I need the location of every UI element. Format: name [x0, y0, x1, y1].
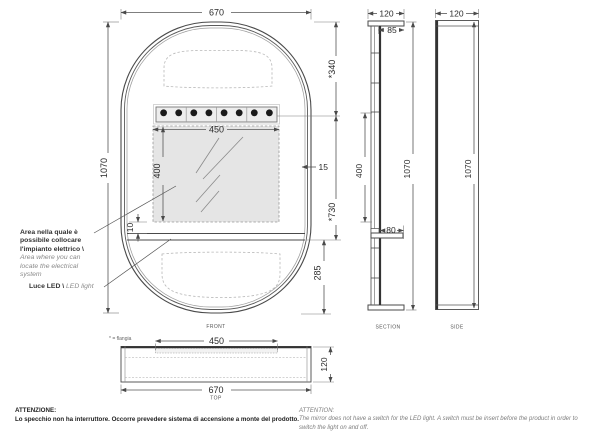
note-italian-title: ATTENZIONE: — [15, 407, 299, 416]
dim-shelf-to-bottom: 285 — [313, 265, 323, 280]
side-view: 120 1070 SIDE — [436, 9, 479, 331]
section-view-label: SECTION — [375, 325, 400, 331]
section-top-cap — [368, 21, 404, 26]
dim-section-depth: 120 — [379, 9, 393, 19]
dim-section-inner-depth: 85 — [387, 25, 397, 35]
electrical-area-annotation-it: Area nella quale è possibile collocare l… — [20, 229, 84, 253]
led-strip — [154, 105, 280, 125]
dim-area-to-shelf: 10 — [125, 223, 135, 233]
dim-light-to-shelf: *730 — [327, 203, 337, 222]
dim-front-height: 1070 — [99, 158, 109, 178]
dim-section-span: 400 — [354, 164, 364, 178]
section-bottom-cap — [368, 305, 404, 310]
section-compartment-dividers — [371, 53, 379, 278]
electrical-area-annotation: Area nella quale è possibile collocare l… — [20, 229, 100, 280]
dim-edge: 15 — [319, 162, 329, 172]
drawing-canvas: 670 1070 *340 15 *730 285 — [0, 0, 600, 433]
dim-section-height: 1070 — [402, 159, 412, 178]
section-dimensions: 120 85 400 80 1070 — [354, 9, 417, 311]
side-view-label: SIDE — [450, 325, 464, 331]
section-shelf-bracket — [371, 229, 379, 234]
electrical-area-annotation-en: Area where you can locate the electrical… — [20, 254, 80, 278]
dim-top-depth: 120 — [319, 357, 329, 371]
section-view: 120 85 400 80 1070 SECTION — [354, 9, 417, 331]
front-view-label: FRONT — [206, 324, 225, 330]
dim-side-height: 1070 — [463, 159, 473, 178]
top-view: 450 120 670 TOP * = flangia — [109, 336, 334, 402]
dim-top-to-light: *340 — [327, 60, 337, 79]
dim-section-shelf: 80 — [386, 225, 396, 235]
dim-top-width: 670 — [208, 385, 223, 395]
led-light-annotation-en: LED light — [66, 283, 94, 290]
flange-footnote: * = flangia — [109, 336, 132, 342]
top-view-label: TOP — [210, 396, 222, 402]
dim-side-depth: 120 — [449, 9, 463, 19]
note-italian-body: Lo specchio non ha interruttore. Occorre… — [15, 416, 299, 425]
dim-area-height: 400 — [152, 163, 162, 178]
note-english: ATTENTION: The mirror does not have a sw… — [299, 407, 595, 432]
note-english-title: ATTENTION: — [299, 407, 595, 415]
technical-drawing-sheet: 670 1070 *340 15 *730 285 — [0, 0, 600, 433]
front-view: 670 1070 *340 15 *730 285 — [94, 8, 341, 331]
electrical-area — [153, 126, 279, 222]
dim-top-flange: 450 — [209, 336, 224, 346]
led-light-annotation-it: Luce LED \ — [29, 283, 66, 290]
top-flange-strip — [156, 349, 278, 354]
note-english-body: The mirror does not have a switch for th… — [299, 415, 595, 432]
dim-front-width: 670 — [209, 8, 224, 18]
note-italian: ATTENZIONE: Lo specchio non ha interrutt… — [15, 407, 299, 425]
led-light-annotation: Luce LED \ LED light — [29, 283, 94, 291]
dim-light-width: 450 — [209, 125, 224, 135]
